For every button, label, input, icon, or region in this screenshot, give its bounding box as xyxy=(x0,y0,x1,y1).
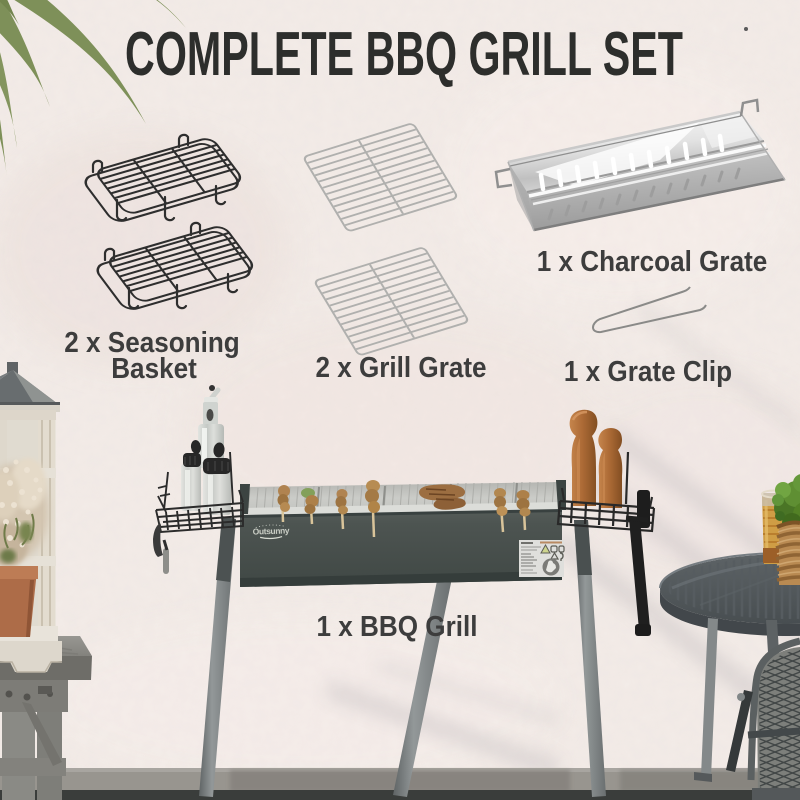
svg-text:1 x Grate Clip: 1 x Grate Clip xyxy=(564,355,732,388)
svg-text:Outsunny: Outsunny xyxy=(252,525,289,536)
svg-text:1 x BBQ Grill: 1 x BBQ Grill xyxy=(317,610,478,643)
svg-text:1 x Charcoal Grate: 1 x Charcoal Grate xyxy=(537,245,768,278)
svg-text:COMPLETE BBQ GRILL SET: COMPLETE BBQ GRILL SET xyxy=(125,20,683,89)
svg-text:Basket: Basket xyxy=(111,352,197,385)
svg-text:2 x Grill Grate: 2 x Grill Grate xyxy=(315,351,486,384)
